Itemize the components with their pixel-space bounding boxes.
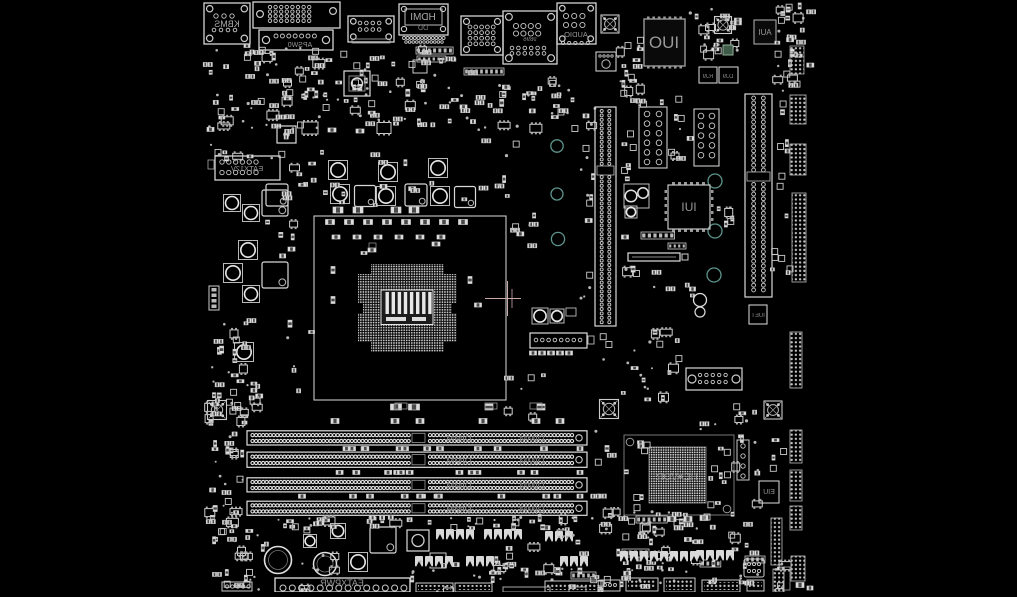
svg-text:IUO: IUO	[649, 33, 679, 52]
svg-text:AUI: AUI	[758, 28, 771, 37]
svg-text:DJ9: DJ9	[722, 74, 733, 80]
svg-text:DIMM: DIMM	[519, 480, 544, 491]
svg-text:RJ9: RJ9	[702, 74, 713, 80]
svg-text:DIMM: DIMM	[446, 480, 471, 491]
svg-text:AUDIO: AUDIO	[564, 30, 588, 39]
svg-text:DIMM: DIMM	[519, 504, 544, 515]
svg-text:EATX12V: EATX12V	[231, 164, 263, 173]
svg-text:HEAVOR: HEAVOR	[656, 472, 698, 483]
svg-text:DIMM: DIMM	[519, 434, 544, 445]
svg-text:EATXPWR: EATXPWR	[320, 578, 364, 588]
svg-text:KBMS: KBMS	[214, 19, 240, 29]
svg-text:EIU: EIU	[763, 489, 775, 496]
svg-text:HDMI: HDMI	[410, 12, 436, 23]
svg-text:DIMM: DIMM	[519, 456, 544, 467]
svg-text:IUI: IUI	[681, 200, 696, 214]
svg-text:IUET: IUET	[751, 313, 765, 319]
svg-text:9896: 9896	[523, 37, 537, 43]
svg-text:DIMM: DIMM	[446, 434, 471, 445]
svg-text:DIMM: DIMM	[446, 456, 471, 467]
svg-text:DIMM: DIMM	[446, 504, 471, 515]
svg-text:DD: DD	[418, 25, 428, 32]
